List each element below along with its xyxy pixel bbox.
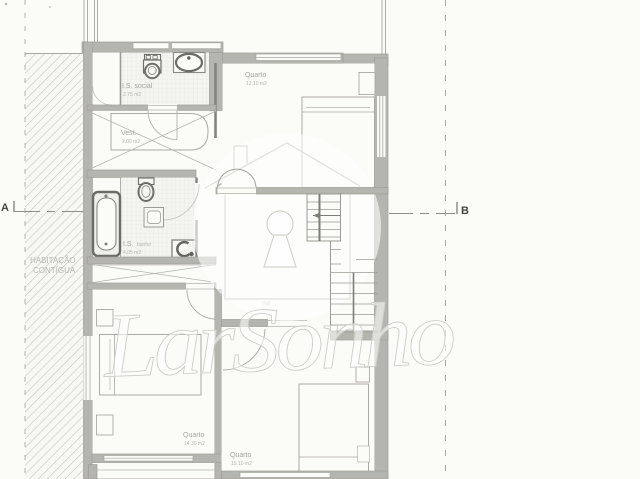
svg-text:CONTÍGUA: CONTÍGUA bbox=[33, 266, 76, 275]
svg-text:I.S. social: I.S. social bbox=[122, 83, 153, 90]
svg-text:HABITAÇÃO: HABITAÇÃO bbox=[30, 256, 76, 265]
svg-text:Quarto: Quarto bbox=[230, 452, 252, 459]
svg-text:2.75 m2: 2.75 m2 bbox=[123, 92, 141, 98]
svg-text:15.10 m2: 15.10 m2 bbox=[231, 461, 252, 467]
svg-text:14.30 m2: 14.30 m2 bbox=[184, 441, 205, 447]
svg-text:4.05 m2: 4.05 m2 bbox=[123, 250, 141, 256]
svg-text:2.00 m2: 2.00 m2 bbox=[122, 139, 140, 145]
svg-text:A: A bbox=[1, 202, 9, 214]
svg-text:LarSonho: LarSonho bbox=[100, 281, 456, 396]
svg-text:banho: banho bbox=[137, 242, 151, 248]
svg-text:Quarto: Quarto bbox=[183, 432, 205, 439]
svg-text:I.S.: I.S. bbox=[123, 241, 134, 248]
svg-text:B: B bbox=[461, 205, 469, 217]
svg-text:12.10 m2: 12.10 m2 bbox=[246, 81, 267, 87]
svg-text:Vest.: Vest. bbox=[121, 130, 137, 137]
svg-text:Quarto: Quarto bbox=[245, 72, 267, 79]
